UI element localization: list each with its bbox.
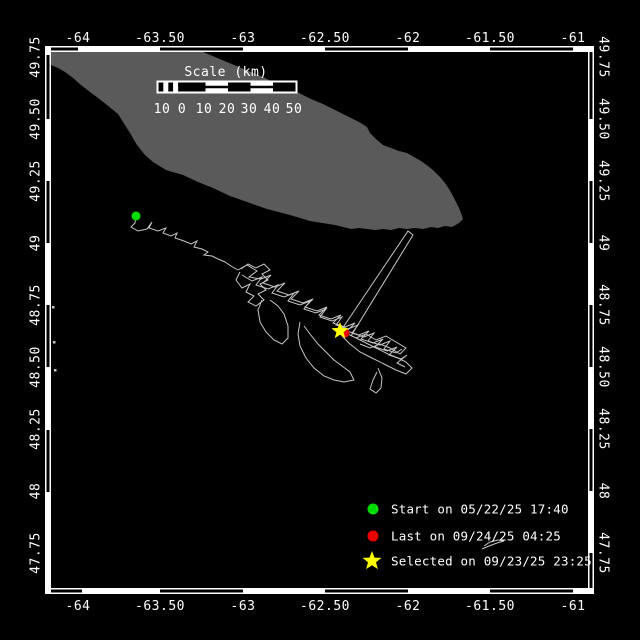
lat-tick-label-left: 49.75 (29, 36, 44, 78)
lat-tick-label-left: 49 (29, 235, 44, 252)
frame-segment (325, 590, 408, 593)
frame-segment (590, 181, 593, 243)
lon-tick-label-top: -63 (231, 31, 256, 46)
scale-bar-subcell (159, 83, 164, 92)
frame-segment (47, 305, 50, 367)
track-fragment (52, 306, 55, 309)
frame-segment (590, 429, 593, 491)
lon-tick-label-bottom: -63 (231, 599, 256, 614)
lat-tick-label-right: 48.25 (596, 408, 611, 450)
frame-segment (47, 430, 50, 492)
track-fragment (53, 341, 56, 344)
scale-bar-number: 50 (286, 102, 303, 117)
scale-bar-number: 20 (219, 102, 236, 117)
scale-bar-number: 30 (241, 102, 258, 117)
lat-tick-label-left: 49.50 (29, 98, 44, 140)
scale-bar-cell (273, 83, 296, 92)
scale-bar-title: Scale (km) (184, 65, 267, 80)
frame-segment (325, 48, 408, 51)
lat-tick-label-left: 47.75 (29, 532, 44, 574)
lat-tick-label-right: 47.75 (596, 532, 611, 574)
frame-segment (51, 590, 82, 593)
frame-segment (590, 305, 593, 367)
track-path[interactable] (258, 300, 288, 344)
lon-tick-label-bottom: -62 (396, 599, 421, 614)
legend-start-label: Start on 05/22/25 17:40 (391, 502, 569, 517)
frame-segment (51, 48, 78, 51)
scale-bar-cell (183, 83, 206, 92)
frame-segment (47, 181, 50, 243)
frame-segment (47, 55, 50, 119)
lat-tick-label-right: 49 (596, 235, 611, 252)
lon-tick-label-bottom: -61.50 (465, 599, 515, 614)
legend-marker-2 (363, 551, 382, 569)
lat-tick-label-right: 48.75 (596, 284, 611, 326)
lat-tick-label-left: 48.50 (29, 346, 44, 388)
track-fragment (54, 369, 57, 372)
lat-tick-label-right: 48 (596, 483, 611, 500)
lat-tick-label-right: 49.25 (596, 160, 611, 202)
track-path[interactable] (340, 330, 412, 374)
frame-segment (490, 590, 573, 593)
lat-tick-label-left: 49.25 (29, 160, 44, 202)
map-canvas[interactable]: -64-64-63.50-63.50-63-63-62.50-62.50-62-… (0, 0, 640, 640)
lon-tick-label-top: -64 (66, 31, 91, 46)
scale-bar-number: 10 (154, 102, 171, 117)
legend-last-label: Last on 09/24/25 04:25 (391, 529, 561, 544)
legend: Start on 05/22/25 17:40 Last on 09/24/25… (363, 502, 592, 570)
track-path[interactable] (238, 265, 407, 367)
scale-bar-number: 40 (264, 102, 281, 117)
frame-segment (160, 48, 243, 51)
scale-bar-subcell (168, 83, 173, 92)
lon-tick-label-top: -61 (561, 31, 586, 46)
scale-bar-subcell (173, 83, 178, 92)
track-path[interactable] (236, 264, 270, 306)
frame-segment (590, 52, 593, 119)
legend-marker-1 (368, 531, 379, 542)
lat-tick-label-left: 48 (29, 483, 44, 500)
lat-tick-label-right: 49.50 (596, 98, 611, 140)
start-position-marker[interactable] (132, 212, 141, 221)
lat-tick-label-right: 48.50 (596, 346, 611, 388)
lat-tick-label-left: 48.75 (29, 284, 44, 326)
lon-tick-label-bottom: -63.50 (135, 599, 185, 614)
lon-tick-label-top: -63.50 (135, 31, 185, 46)
scale-bar-cell (206, 86, 229, 89)
lon-tick-label-top: -62.50 (300, 31, 350, 46)
scale-bar-number: 10 (196, 102, 213, 117)
scale-bar-subcell (163, 83, 168, 92)
lat-tick-label-left: 48.25 (29, 408, 44, 450)
frame-segment (160, 590, 243, 593)
track-path[interactable] (131, 216, 238, 270)
track-path[interactable] (342, 231, 413, 336)
scale-bar-cell (228, 83, 251, 92)
lat-tick-label-right: 49.75 (596, 36, 611, 78)
scale-bar-cell (251, 86, 274, 89)
scale-bar-number: 0 (178, 102, 186, 117)
legend-selected-label: Selected on 09/23/25 23:25 (391, 554, 592, 569)
lon-tick-label-bottom: -64 (66, 599, 91, 614)
track-path[interactable] (370, 368, 382, 393)
lon-tick-label-top: -62 (396, 31, 421, 46)
lon-tick-label-bottom: -62.50 (300, 599, 350, 614)
lon-tick-label-bottom: -61 (561, 599, 586, 614)
frame-segment (490, 48, 573, 51)
tracking-map-figure: -64-64-63.50-63.50-63-63-62.50-62.50-62-… (0, 0, 640, 640)
legend-marker-0 (368, 504, 379, 515)
lon-tick-label-top: -61.50 (465, 31, 515, 46)
drift-track[interactable] (52, 216, 504, 549)
scale-bar-subcell (178, 83, 183, 92)
